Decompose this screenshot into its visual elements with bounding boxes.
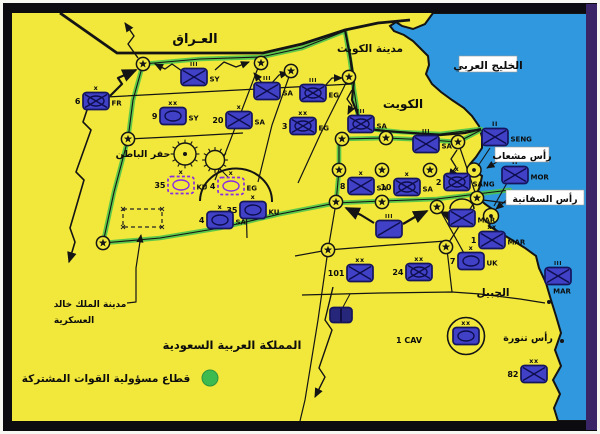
echelon-mark: III	[554, 261, 562, 267]
unit-number: 6	[75, 97, 81, 106]
map-area: x6FRIIISYxx9SYx20SAIIISAIIIEGxx3EGIIISAI…	[12, 13, 587, 421]
unit-country-label: SY	[210, 76, 221, 84]
objective-star	[430, 200, 443, 213]
echelon-mark: xx	[168, 99, 178, 107]
label-ras-tanura: رأس تنورة	[503, 331, 553, 344]
legend-text: قطاع مسؤولية القوات المشتركة	[22, 373, 191, 385]
unit-number: 4	[199, 216, 205, 225]
objective-star	[379, 131, 392, 144]
unit-box	[458, 253, 484, 270]
objective-star	[470, 191, 483, 204]
echelon-mark: III	[309, 78, 317, 84]
unit-number: 4	[210, 182, 216, 191]
objective-star	[342, 70, 355, 83]
echelon-mark: x	[455, 165, 460, 173]
unit-country-label: SA	[255, 119, 266, 127]
unit-number: 2	[436, 178, 442, 187]
gulf-war-deployment-map: x6FRIIISYxx9SYx20SAIIISAIIIEGxx3EGIIISAI…	[0, 0, 600, 434]
unit-box	[160, 108, 186, 125]
echelon-mark: x	[229, 169, 234, 177]
echelon-mark: xx	[461, 319, 471, 327]
label-iraq: العـراق	[172, 32, 217, 47]
map-frame-right-tint	[586, 4, 597, 430]
unit-country-label: KU	[197, 184, 208, 192]
objective-star	[451, 135, 464, 148]
unit-country-label: FR	[112, 100, 123, 108]
label-kkmc-line1: مدينة الملك خالد	[54, 300, 127, 310]
objective-star	[332, 163, 345, 176]
unit-country-label: MAR	[508, 239, 526, 247]
unit-country-label: SA	[377, 123, 388, 131]
echelon-mark: x	[251, 193, 256, 201]
unit-country-label: EG	[319, 125, 330, 133]
unit-country-label: SA	[442, 143, 453, 151]
unit-country-label: SA	[236, 219, 247, 227]
unit-number: 9	[152, 112, 158, 121]
unit-box	[453, 328, 479, 345]
objective-star	[284, 64, 297, 77]
objective-star	[321, 243, 334, 256]
unit-number: 7	[450, 257, 456, 266]
unit-number: 8	[340, 182, 346, 191]
echelon-mark: III	[357, 109, 365, 115]
place-name: مدينة الملك خالد	[54, 300, 127, 310]
unit-number: 3	[282, 122, 288, 131]
unit-number: 24	[392, 268, 404, 277]
echelon-mark: xx	[487, 223, 497, 231]
label-ras-mishab: رأس مشعاب	[492, 147, 551, 162]
label-saudi-arabia: المملكة العربية السعودية	[163, 338, 302, 353]
unit-number: 10	[380, 183, 392, 192]
unit-number: 101	[328, 269, 345, 278]
label-hafar-al-batin: حفر الباطن	[116, 149, 171, 160]
unit-number: 35	[154, 181, 166, 190]
place-name: رأس تنورة	[503, 331, 553, 344]
unit-country-label: EG	[329, 92, 340, 100]
echelon-mark: x	[469, 244, 474, 252]
echelon-mark: xx	[355, 256, 365, 264]
unit-acr	[330, 308, 352, 323]
place-name: حفر الباطن	[116, 149, 171, 160]
echelon-mark: x	[405, 170, 410, 178]
place-name: الكويت	[383, 97, 423, 112]
echelon-mark: x	[218, 203, 223, 211]
unit-country-label: KU	[269, 209, 280, 217]
unit-box	[240, 202, 266, 219]
unit-country-label: EG	[247, 185, 258, 193]
place-name: العسكرية	[54, 316, 94, 326]
unit-country-label: SY	[189, 115, 200, 123]
place-name: المملكة العربية السعودية	[163, 338, 302, 353]
place-name: الخليج العربي	[453, 60, 522, 72]
echelon-mark: xx	[298, 109, 308, 117]
echelon-mark: II	[492, 120, 498, 128]
objective-star	[329, 195, 342, 208]
unit-country-label: UK	[487, 260, 499, 268]
unit-box	[207, 212, 233, 229]
label-kuwait: الكويت	[383, 97, 423, 112]
echelon-mark: x	[94, 84, 99, 92]
place-name: رأس السفانية	[512, 192, 577, 205]
objective-star	[136, 57, 149, 70]
place-name: الجبيل	[476, 287, 509, 299]
objective-star	[375, 163, 388, 176]
place-name: 1 CAV	[396, 336, 423, 345]
unit-country-label: SENG	[511, 136, 533, 144]
echelon-mark: III	[422, 129, 430, 135]
label-cav-1-caption: 1 CAV	[396, 336, 423, 345]
objective-star	[254, 56, 267, 69]
echelon-mark: x	[237, 103, 242, 111]
objective-star	[439, 240, 452, 253]
unit-number: 20	[212, 116, 224, 125]
unit-country-label: MAR	[553, 288, 571, 296]
legend: قطاع مسؤولية القوات المشتركة	[22, 370, 218, 386]
objective-star	[335, 132, 348, 145]
label-arabian-gulf: الخليج العربي	[453, 56, 522, 72]
echelon-mark: III	[385, 214, 393, 220]
unit-country-label: SA	[423, 186, 434, 194]
map-svg: x6FRIIISYxx9SYx20SAIIISAIIIEGxx3EGIIISAI…	[0, 0, 600, 434]
echelon-mark: xx	[414, 255, 424, 263]
echelon-mark: III	[190, 62, 198, 68]
unit-country-label: SANG	[473, 181, 495, 189]
label-kuwait-city: مدينة الكويت	[337, 43, 403, 55]
coast-dot	[547, 300, 551, 304]
echelon-mark: x	[359, 169, 364, 177]
legend-green-dot	[202, 370, 218, 386]
echelon-mark: xx	[529, 357, 539, 365]
objective-star	[96, 236, 109, 249]
objective-star	[121, 132, 134, 145]
objective-star	[423, 163, 436, 176]
echelon-mark: III	[263, 76, 271, 82]
label-ras-safaniya: رأس السفانية	[506, 190, 584, 205]
place-name: رأس مشعاب	[492, 149, 551, 162]
unit-number: 82	[507, 370, 518, 379]
label-al-jubail: الجبيل	[476, 287, 509, 299]
place-name: مدينة الكويت	[337, 43, 403, 55]
unit-country-label: MOR	[531, 174, 550, 182]
label-kkmc-line2: العسكرية	[54, 316, 94, 326]
echelon-mark: x	[179, 168, 184, 176]
objective-star	[375, 195, 388, 208]
unit-country-label: SA	[283, 90, 294, 98]
coast-dot	[560, 339, 564, 343]
place-name: العـراق	[172, 32, 217, 47]
